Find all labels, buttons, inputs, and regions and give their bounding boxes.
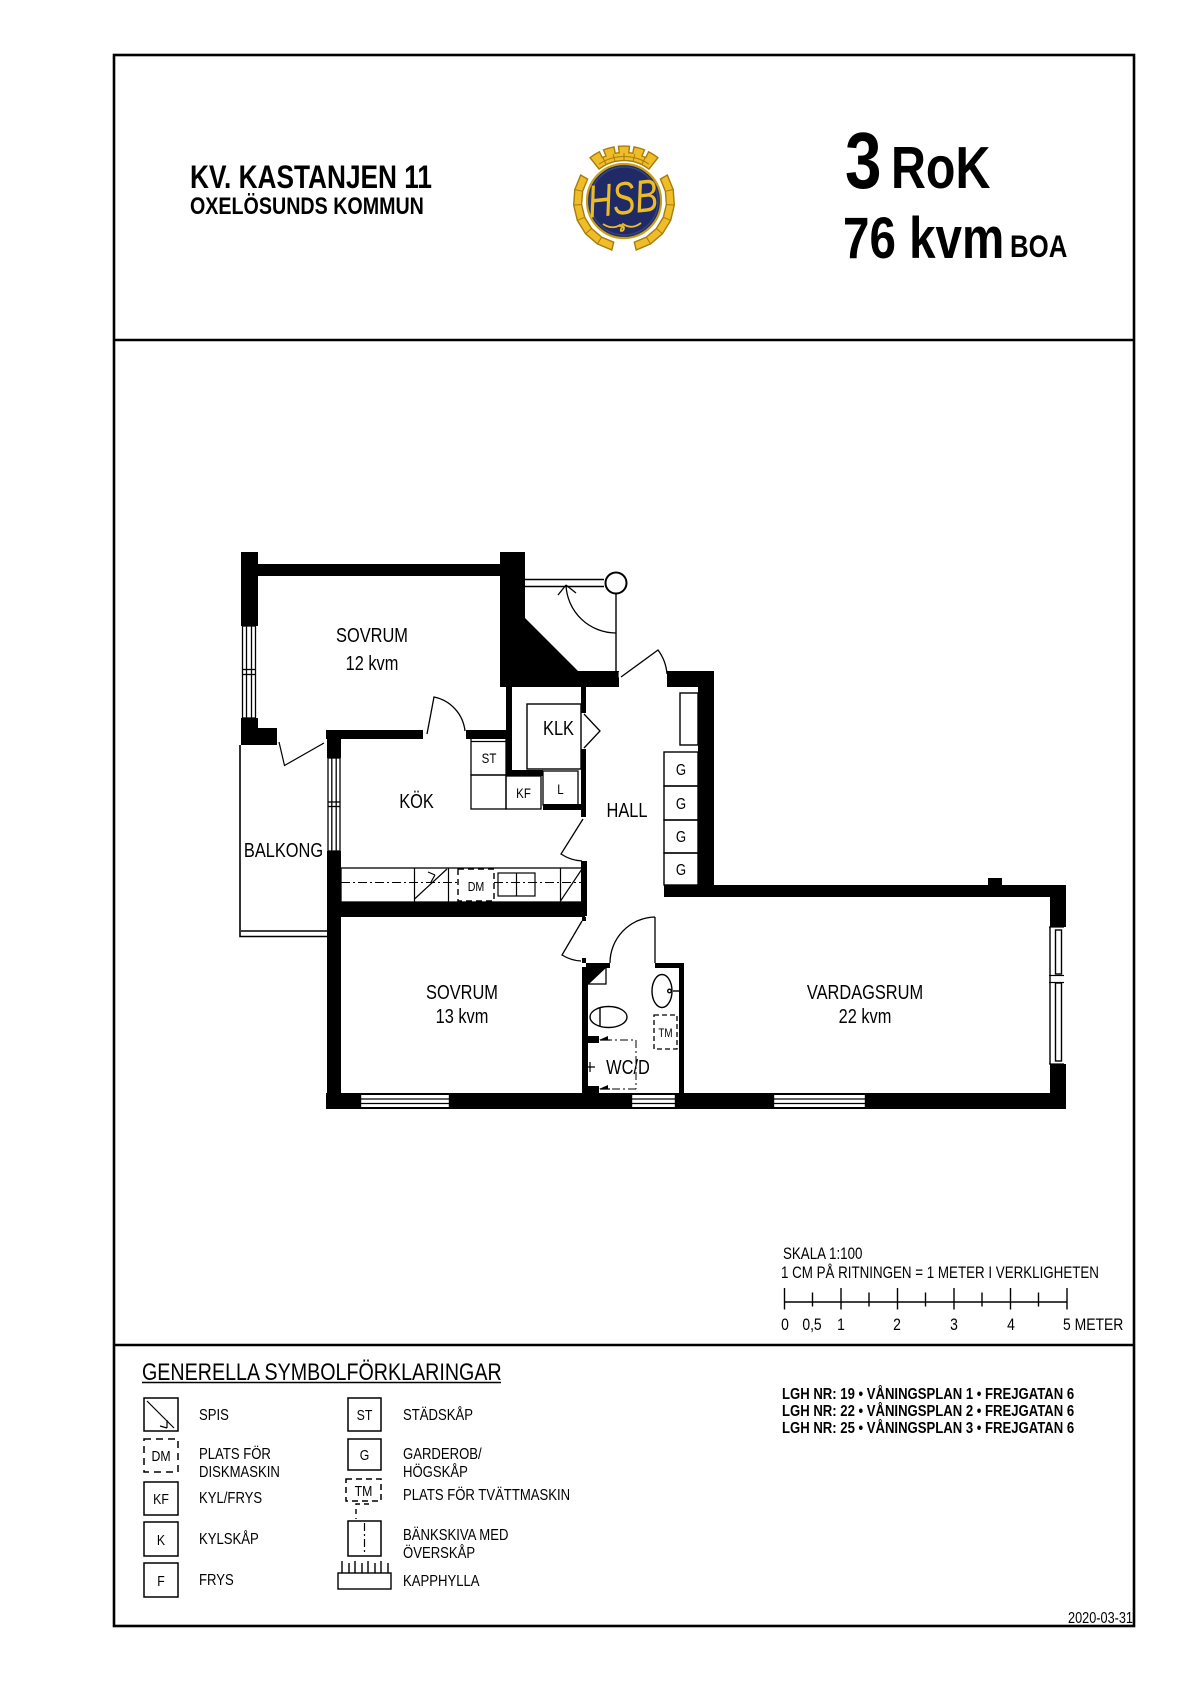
svg-text:HSB: HSB [585,169,660,228]
svg-text:2020-03-31: 2020-03-31 [1068,1610,1133,1627]
svg-text:0: 0 [781,1316,789,1335]
svg-text:DISKMASKIN: DISKMASKIN [199,1464,280,1481]
svg-text:PLATS FÖR TVÄTTMASKIN: PLATS FÖR TVÄTTMASKIN [403,1485,570,1505]
svg-text:KLK: KLK [543,716,574,739]
svg-text:5 METER: 5 METER [1063,1316,1123,1335]
svg-text:OXELÖSUNDS KOMMUN: OXELÖSUNDS KOMMUN [190,192,424,219]
svg-text:SPIS: SPIS [199,1407,229,1424]
svg-text:76 kvm: 76 kvm [843,207,1004,272]
svg-text:1: 1 [837,1316,845,1335]
svg-text:0,5: 0,5 [802,1316,821,1335]
svg-text:DM: DM [468,879,485,894]
svg-text:1 CM PÅ RITNINGEN = 1 METER I: 1 CM PÅ RITNINGEN = 1 METER I VERKLIGHET… [781,1264,1099,1283]
svg-text:LGH NR: 25 • VÅNINGSPLAN 3 • F: LGH NR: 25 • VÅNINGSPLAN 3 • FREJGATAN 6 [782,1419,1074,1438]
svg-text:F: F [157,1573,165,1589]
svg-text:SOVRUM: SOVRUM [426,980,498,1003]
svg-text:HALL: HALL [607,798,648,821]
svg-text:G: G [676,762,686,779]
svg-text:4: 4 [1007,1316,1015,1335]
svg-text:VARDAGSRUM: VARDAGSRUM [807,980,923,1003]
svg-text:STÄDSKÅP: STÄDSKÅP [403,1406,473,1425]
svg-text:KAPPHYLLA: KAPPHYLLA [403,1573,480,1590]
svg-text:K: K [157,1532,165,1548]
svg-text:KYLSKÅP: KYLSKÅP [199,1530,259,1549]
svg-text:L: L [557,781,563,797]
svg-text:SKALA 1:100: SKALA 1:100 [783,1246,862,1263]
svg-text:TM: TM [355,1483,373,1499]
svg-text:GARDEROB/: GARDEROB/ [403,1446,483,1463]
svg-text:WC/D: WC/D [606,1055,650,1078]
svg-text:SOVRUM: SOVRUM [336,623,408,646]
svg-text:3: 3 [845,116,881,206]
svg-text:FRYS: FRYS [199,1572,234,1589]
svg-text:KF: KF [153,1491,169,1507]
svg-text:G: G [676,829,686,846]
svg-text:DM: DM [151,1448,170,1464]
svg-text:3: 3 [950,1316,958,1335]
svg-text:BOA: BOA [1010,230,1068,265]
svg-text:KYL/FRYS: KYL/FRYS [199,1490,262,1507]
svg-text:RoK: RoK [891,136,990,202]
svg-text:BÄNKSKIVA MED: BÄNKSKIVA MED [403,1526,508,1545]
svg-text:PLATS FÖR: PLATS FÖR [199,1444,271,1464]
svg-text:LGH NR: 19 • VÅNINGSPLAN 1 • F: LGH NR: 19 • VÅNINGSPLAN 1 • FREJGATAN 6 [782,1385,1074,1404]
svg-text:G: G [676,796,686,813]
svg-text:ST: ST [357,1407,373,1423]
svg-text:G: G [676,862,686,879]
svg-text:KV. KASTANJEN 11: KV. KASTANJEN 11 [190,161,432,196]
svg-text:2: 2 [893,1316,901,1335]
svg-text:KF: KF [516,785,531,801]
svg-text:12 kvm: 12 kvm [346,651,399,674]
svg-text:HÖGSKÅP: HÖGSKÅP [403,1462,468,1482]
svg-text:GENERELLA SYMBOLFÖRKLARINGAR: GENERELLA SYMBOLFÖRKLARINGAR [142,1358,502,1385]
svg-text:G: G [360,1447,370,1463]
svg-text:BALKONG: BALKONG [244,838,323,861]
svg-text:TM: TM [658,1027,672,1040]
svg-text:KÖK: KÖK [399,789,434,812]
svg-text:22 kvm: 22 kvm [839,1004,892,1027]
svg-text:ST: ST [482,750,497,766]
svg-text:ÖVERSKÅP: ÖVERSKÅP [403,1543,475,1563]
svg-text:LGH NR: 22 • VÅNINGSPLAN 2 • F: LGH NR: 22 • VÅNINGSPLAN 2 • FREJGATAN 6 [782,1402,1074,1421]
svg-text:13 kvm: 13 kvm [436,1004,489,1027]
